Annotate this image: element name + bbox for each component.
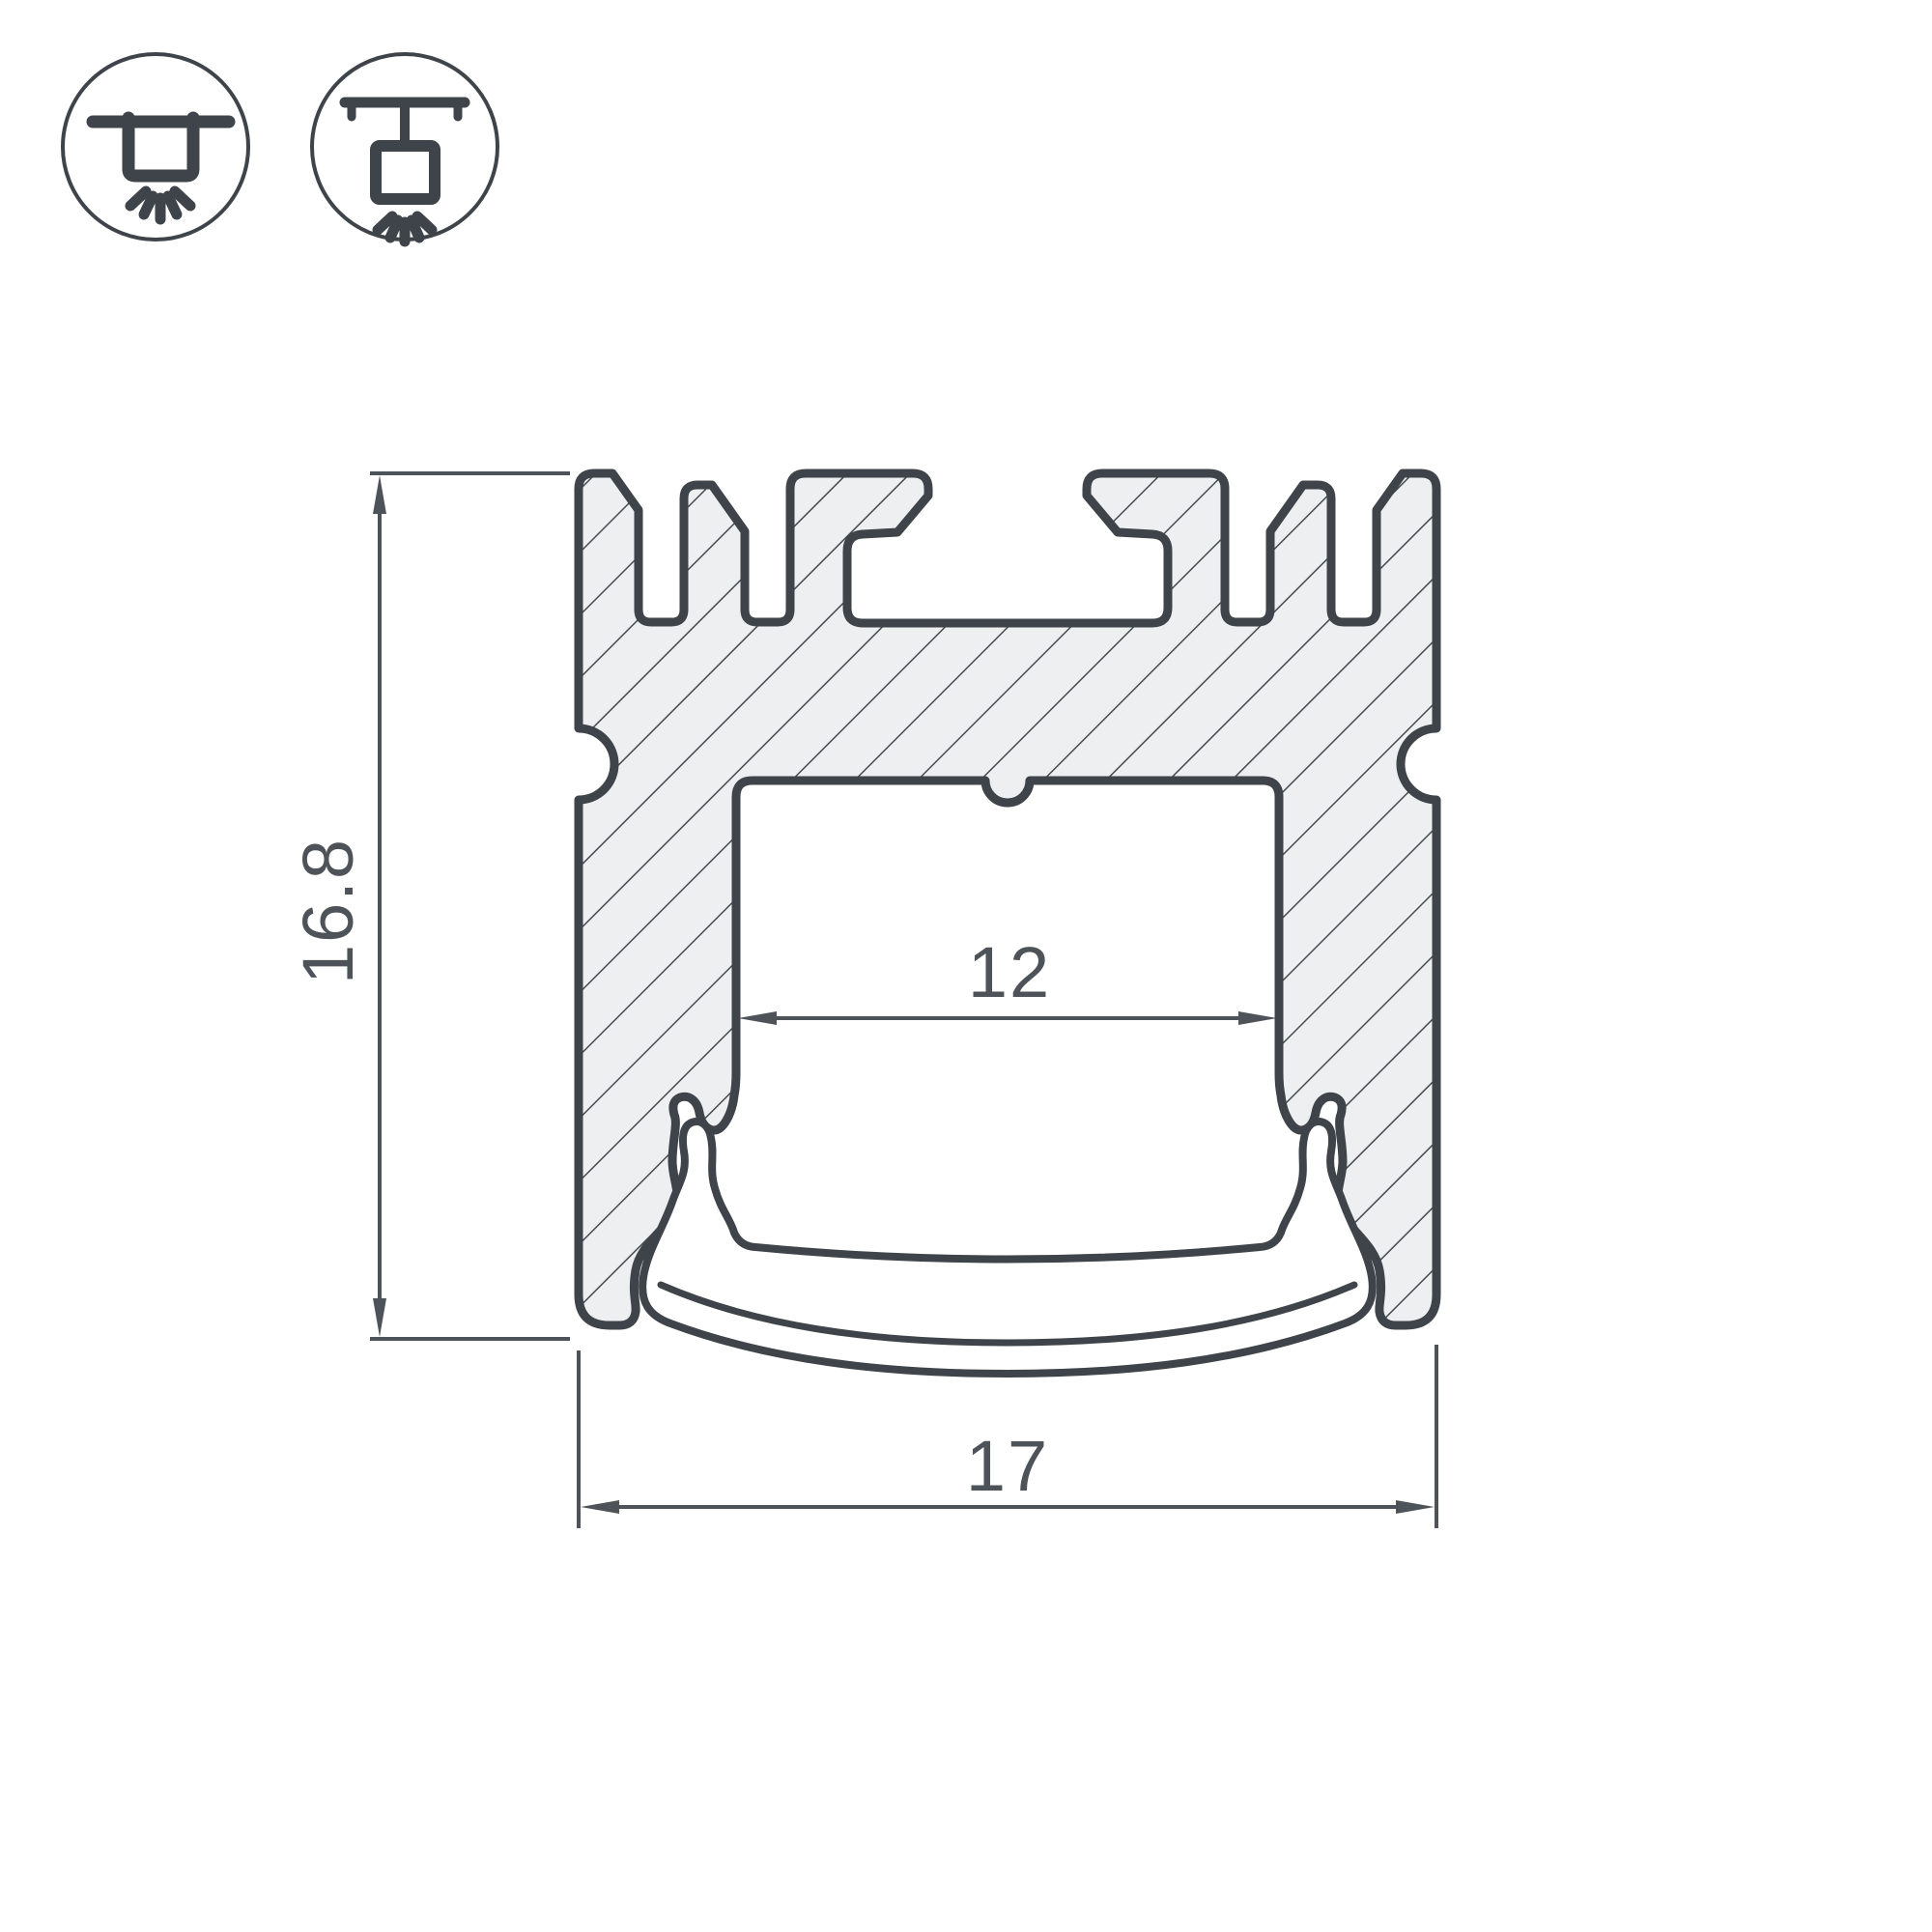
technical-drawing-page: 16.8 12 17 [0,0,1932,1932]
dimension-inner-width [738,1011,1277,1025]
arrowhead-right [1238,1011,1277,1025]
fixture-box [376,146,435,199]
diffuser-lens [642,1122,1373,1374]
profile-cross-section [579,473,1436,1374]
dim-outer-width-label: 17 [966,1426,1049,1506]
arrowhead-right [1396,1500,1435,1514]
profile-drawing-canvas: 16.8 12 17 [0,0,1932,1932]
dim-height-label: 16.8 [288,838,368,984]
light-rays [130,191,190,219]
arrowhead-left [738,1011,777,1025]
arrowhead-up [373,475,386,514]
dimension-height [370,473,570,1339]
dim-inner-width-label: 12 [968,932,1051,1012]
pendant-mount-light-icon [312,54,497,241]
arrowhead-down [373,1298,386,1337]
arrowhead-left [581,1500,619,1514]
light-rays [378,216,432,241]
surface-mount-light-icon [63,54,248,240]
